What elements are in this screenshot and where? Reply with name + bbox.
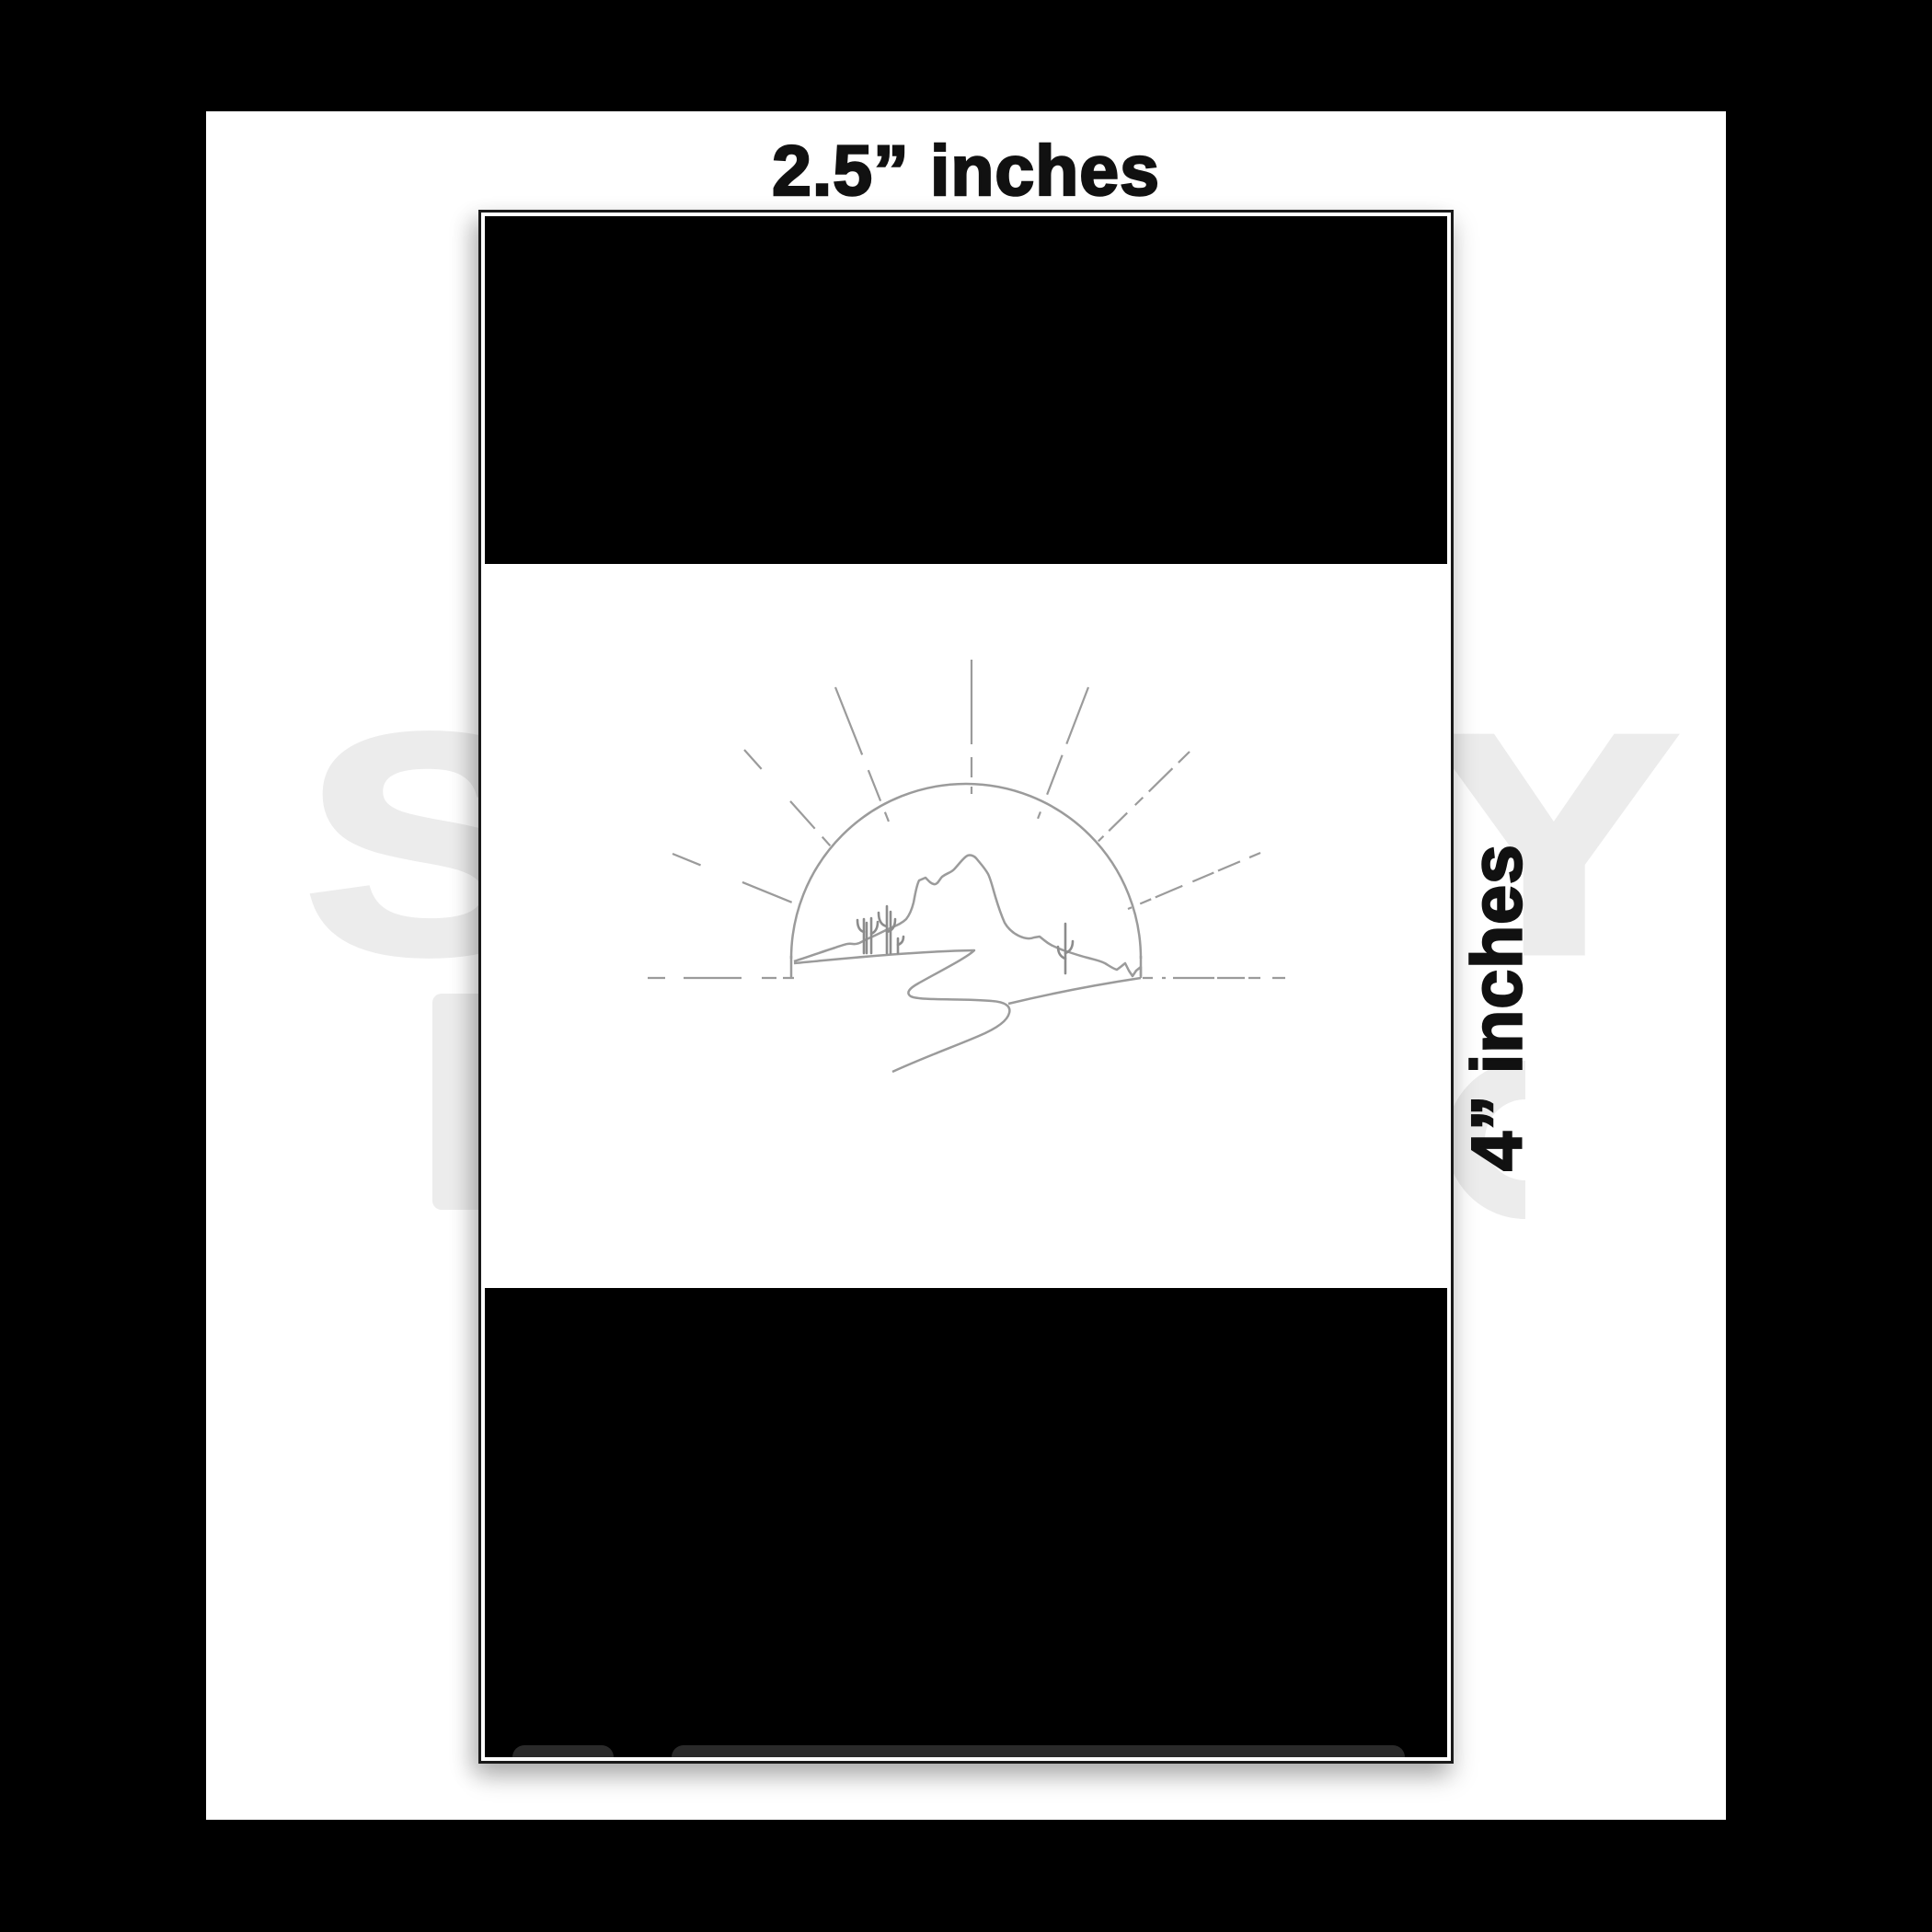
road-right-bank-line bbox=[1008, 978, 1141, 1004]
desert-sunrise-illustration bbox=[485, 564, 1447, 1288]
card-top-black-band bbox=[485, 216, 1447, 564]
width-dimension-label: 2.5” inches bbox=[206, 136, 1726, 207]
height-dimension-label: 4” inches bbox=[1463, 844, 1534, 1171]
winding-road-line bbox=[794, 950, 1009, 1072]
product-sheet: STICKY 2.5” inches 4” inches bbox=[206, 111, 1726, 1820]
cutoff-shape-right bbox=[672, 1745, 1405, 1757]
cutoff-shape-left bbox=[512, 1745, 614, 1757]
sticker-card bbox=[478, 210, 1454, 1764]
card-bottom-black-band bbox=[485, 1288, 1447, 1757]
card-artwork-area bbox=[485, 564, 1447, 1288]
sun-icon bbox=[791, 784, 1141, 978]
saguaro-cacti-icon bbox=[857, 906, 903, 953]
mockup-canvas: STICKY 2.5” inches 4” inches bbox=[0, 0, 1932, 1932]
